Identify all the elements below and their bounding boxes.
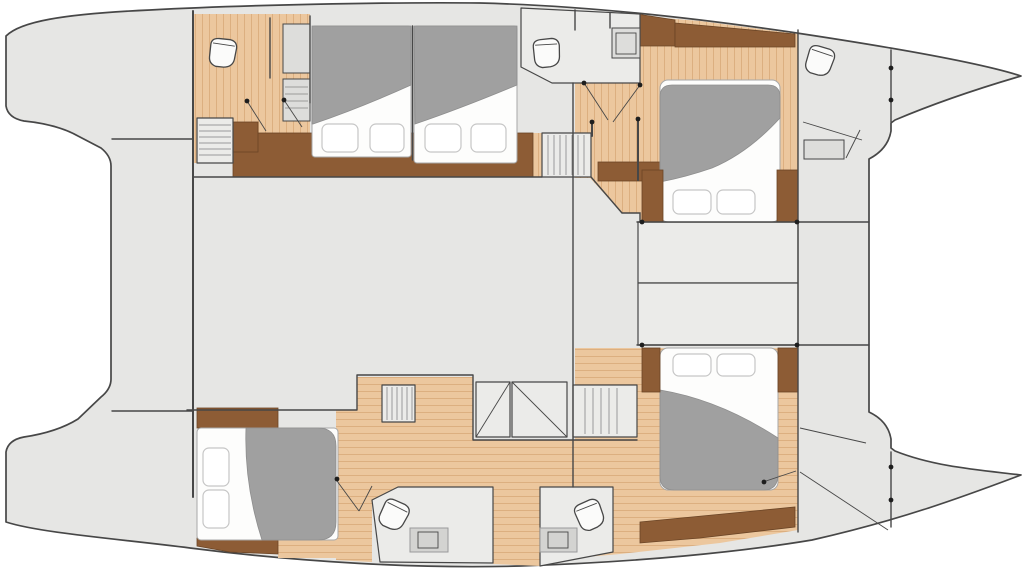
locker-forward-starboard-a [637,14,675,46]
nightstand-fwd-stbd-left [642,170,663,222]
nightstand-aft-stbd-right [778,348,798,392]
dresser-by-stairs [233,122,258,152]
central-companionway [542,133,591,177]
forward-port-companionway [197,118,233,163]
floor-between-heads [493,487,540,566]
nightstand-aft-stbd-left [642,348,660,392]
aft-starboard-island-bed [660,348,778,490]
toilet-forward-port [209,38,238,69]
foredeck-panel-upper [638,222,798,283]
floor-plan [0,0,1024,576]
shower-forward-port [283,24,310,73]
hanging-wardrobe [573,385,637,437]
nightstand-fwd-stbd-right [777,170,798,222]
aft-companionway-hatch [382,385,415,422]
forward-starboard-island-bed [660,80,780,222]
vanity-aft-port [410,528,448,552]
bow-locker-shelf [804,140,844,159]
screenshot-root [0,0,1024,576]
shelf-aft-port-top [197,408,278,428]
foredeck-panel-lower [638,283,798,345]
aft-starboard-head-room [540,487,613,566]
floor-right-of-head [613,487,637,552]
cabinet-door-right [512,382,567,437]
cabinet-door-left [476,382,510,437]
rack-forward-port [283,79,310,121]
forward-port-bed-1 [312,26,411,157]
vanity-aft-starboard [540,528,577,552]
floor-center-aft [473,440,637,487]
forward-port-bed-2 [414,26,517,163]
aft-port-bed [197,428,338,540]
toilet-forward-starboard [533,38,562,69]
floor-sliver-central [533,133,542,177]
floor-below-aft-port-bed [278,540,336,558]
